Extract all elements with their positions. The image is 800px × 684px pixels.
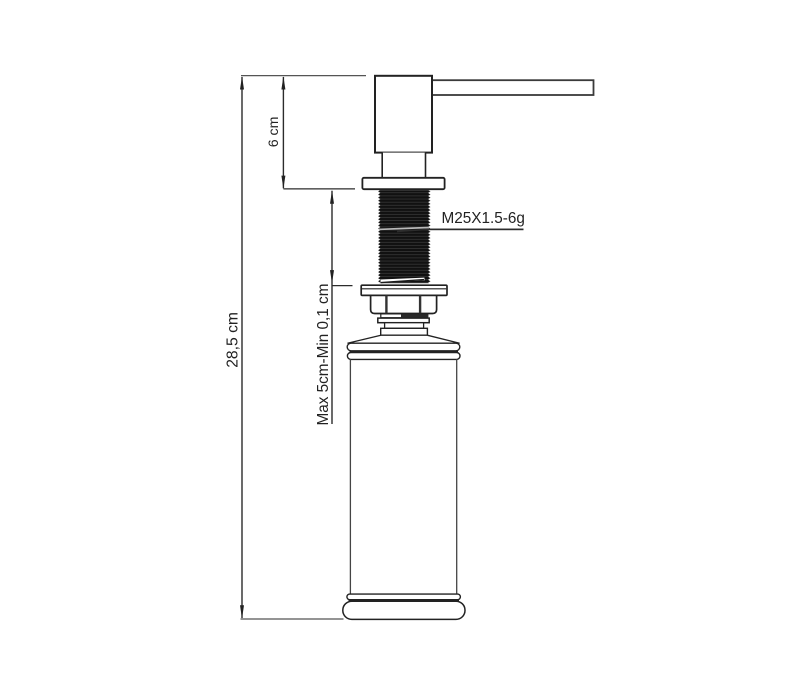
svg-text:M25X1.5-6g: M25X1.5-6g bbox=[442, 210, 525, 227]
svg-text:Max 5cm-Min 0,1 cm: Max 5cm-Min 0,1 cm bbox=[315, 284, 332, 426]
svg-text:6 cm: 6 cm bbox=[266, 117, 282, 148]
svg-text:28,5 cm: 28,5 cm bbox=[224, 312, 241, 368]
